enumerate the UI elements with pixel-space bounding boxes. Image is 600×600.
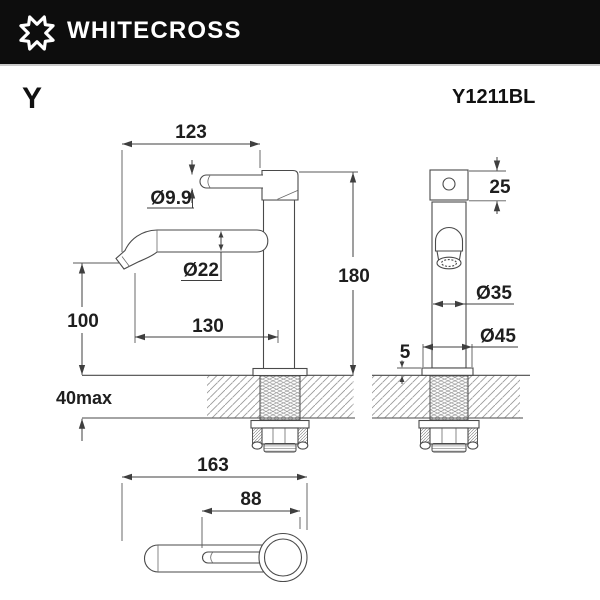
cap-front (430, 170, 468, 200)
dim-cap-height: 25 (469, 157, 511, 214)
dim-deck-thickness-label: 40max (56, 388, 112, 408)
faucet-body-front (432, 202, 466, 368)
body-circle-top (259, 534, 307, 582)
dim-deck-thickness: 40max (56, 388, 112, 441)
mounting-nut-front (419, 421, 479, 453)
base-flange-side (253, 369, 307, 376)
dim-handle-diameter-label: Ø9.9 (150, 188, 191, 209)
handle-lever-top (203, 552, 266, 563)
dim-cap-height-label: 25 (489, 177, 511, 198)
top-view: 163 88 (122, 455, 307, 582)
front-view: 25 Ø35 Ø45 5 (372, 157, 530, 452)
threaded-shank-front (430, 376, 468, 420)
dim-body-diameter-label: Ø35 (476, 283, 512, 304)
side-countertop (82, 375, 355, 418)
dim-overall-length-top: 163 (122, 455, 307, 541)
faucet-body-side (264, 200, 295, 369)
dim-handle-diameter: Ø9.9 (147, 160, 194, 209)
handle-lever-side (200, 175, 263, 188)
dim-flange-thickness-label: 5 (400, 342, 411, 363)
dim-total-height: 180 (299, 172, 370, 375)
base-flange-front (422, 368, 473, 375)
dim-handle-length-top-label: 88 (240, 489, 261, 510)
spout-outlet-front (436, 228, 463, 269)
dim-spout-projection: 130 (135, 273, 278, 343)
dim-total-height-label: 180 (338, 266, 370, 287)
cap-side (262, 171, 298, 201)
dim-outlet-height: 100 (67, 263, 120, 375)
dim-spout-diameter-label: Ø22 (183, 260, 219, 281)
dim-spout-reach-label: 123 (175, 122, 207, 143)
dim-flange-diameter-label: Ø45 (480, 326, 516, 347)
dim-overall-length-top-label: 163 (197, 455, 229, 476)
mounting-nut-side (251, 421, 309, 453)
technical-drawing: 123 Ø9.9 Ø22 130 100 (0, 0, 600, 600)
threaded-shank-side (260, 376, 300, 420)
dim-outlet-height-label: 100 (67, 311, 99, 332)
dim-spout-projection-label: 130 (192, 316, 224, 337)
side-view: 123 Ø9.9 Ø22 130 100 (56, 122, 370, 452)
